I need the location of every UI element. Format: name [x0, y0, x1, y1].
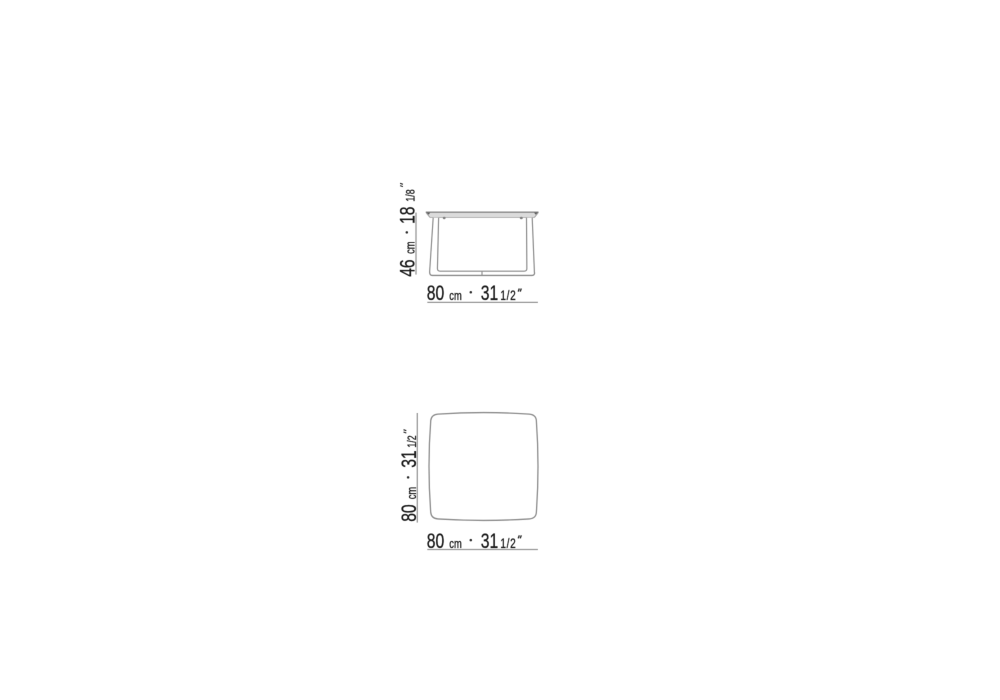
svg-text:80: 80 — [427, 281, 444, 305]
svg-text:31: 31 — [481, 528, 498, 552]
svg-text:cm: cm — [406, 487, 420, 499]
svg-text:1/8: 1/8 — [404, 189, 418, 201]
svg-text:18: 18 — [395, 207, 419, 224]
svg-text:cm: cm — [404, 241, 418, 253]
svg-text:cm: cm — [449, 538, 461, 552]
svg-text:31: 31 — [396, 450, 420, 467]
svg-text:31: 31 — [481, 281, 498, 305]
svg-text:46: 46 — [395, 259, 419, 276]
svg-text:cm: cm — [449, 290, 461, 304]
svg-text:1/2: 1/2 — [500, 535, 516, 551]
svg-text:80: 80 — [396, 504, 420, 521]
svg-text:1/2: 1/2 — [500, 287, 516, 303]
svg-text:80: 80 — [427, 528, 444, 552]
svg-text:1/2: 1/2 — [406, 435, 420, 447]
